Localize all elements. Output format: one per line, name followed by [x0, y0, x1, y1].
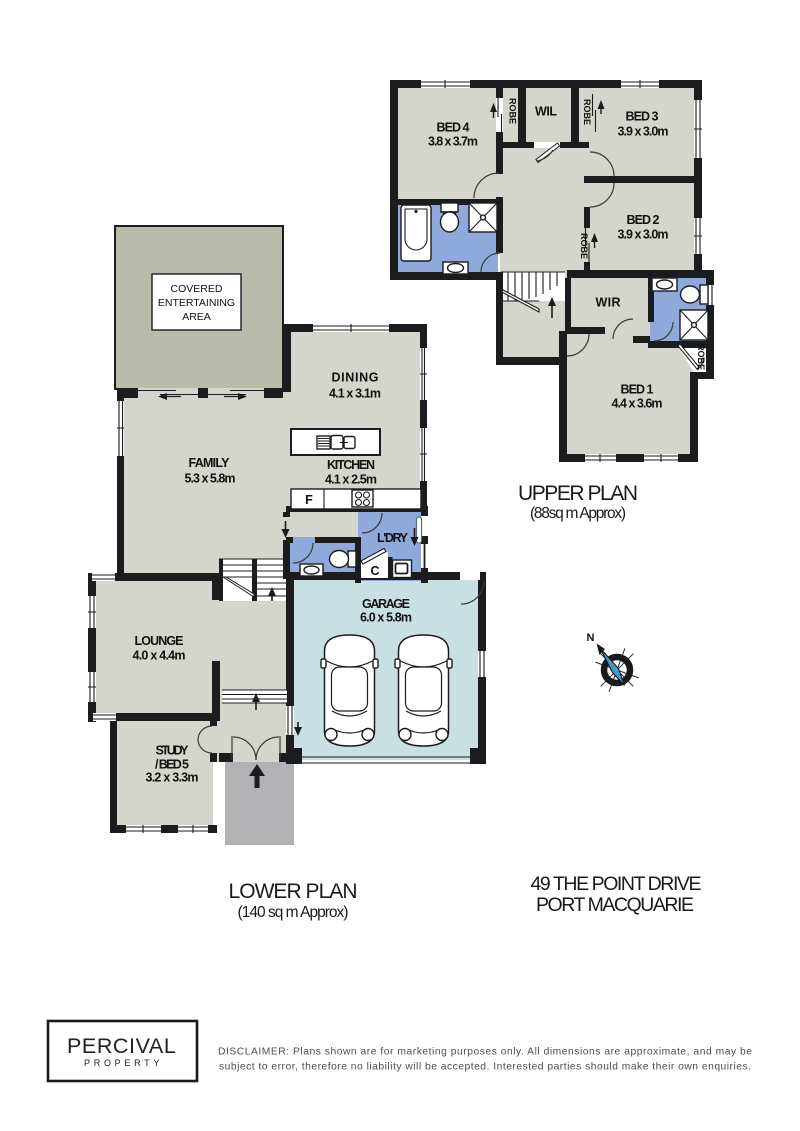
svg-text:3.2 x 3.3m: 3.2 x 3.3m — [146, 771, 199, 785]
svg-text:F: F — [305, 493, 313, 507]
svg-text:3.9 x 3.0m: 3.9 x 3.0m — [618, 125, 669, 139]
svg-text:ENTERTAINING: ENTERTAINING — [158, 297, 235, 309]
svg-text:PROPERTY: PROPERTY — [84, 1058, 164, 1068]
svg-text:COVERED: COVERED — [171, 283, 223, 295]
svg-text:BED 3: BED 3 — [626, 110, 659, 124]
svg-text:AREA: AREA — [182, 311, 211, 323]
svg-text:(88sq m Approx): (88sq m Approx) — [530, 505, 626, 522]
svg-text:/ BED 5: / BED 5 — [155, 758, 189, 772]
svg-text:4.1 x 2.5m: 4.1 x 2.5m — [325, 473, 377, 487]
svg-text:UPPER PLAN: UPPER PLAN — [518, 482, 638, 505]
svg-text:6.0 x 5.8m: 6.0 x 5.8m — [360, 611, 412, 625]
svg-text:ROBE: ROBE — [508, 98, 518, 124]
svg-text:WIR: WIR — [596, 296, 621, 310]
svg-text:BED 1: BED 1 — [621, 383, 654, 397]
svg-text:STUDY: STUDY — [156, 744, 190, 758]
svg-text:LOWER PLAN: LOWER PLAN — [229, 880, 358, 903]
svg-text:PORT MACQUARIE: PORT MACQUARIE — [536, 894, 694, 916]
svg-text:DINING: DINING — [332, 371, 379, 385]
svg-text:4.1 x 3.1m: 4.1 x 3.1m — [329, 387, 381, 401]
svg-text:FAMILY: FAMILY — [189, 456, 231, 470]
svg-text:BED 4: BED 4 — [437, 121, 470, 135]
svg-text:L'DRY: L'DRY — [377, 531, 409, 545]
svg-text:5.3 x 5.8m: 5.3 x 5.8m — [185, 472, 236, 486]
svg-text:4.4 x 3.6m: 4.4 x 3.6m — [612, 397, 663, 411]
svg-text:ROBE: ROBE — [579, 233, 589, 259]
svg-text:subject to error, therefore no: subject to error, therefore no liability… — [219, 1062, 751, 1073]
svg-text:ROBE: ROBE — [696, 344, 706, 370]
svg-text:BED 2: BED 2 — [627, 213, 660, 227]
svg-text:ROBE: ROBE — [582, 99, 592, 125]
svg-text:4.0 x 4.4m: 4.0 x 4.4m — [133, 649, 186, 663]
svg-text:GARAGE: GARAGE — [362, 597, 410, 611]
svg-text:49 THE POINT DRIVE: 49 THE POINT DRIVE — [531, 873, 702, 895]
svg-text:N: N — [587, 632, 595, 644]
svg-text:DISCLAIMER: Plans shown are fo: DISCLAIMER: Plans shown are for marketin… — [218, 1047, 752, 1058]
svg-text:3.9 x 3.0m: 3.9 x 3.0m — [618, 228, 669, 242]
svg-text:LOUNGE: LOUNGE — [135, 634, 184, 648]
svg-text:C: C — [370, 564, 379, 578]
svg-text:(140 sq m Approx): (140 sq m Approx) — [238, 904, 349, 921]
svg-text:WIL: WIL — [535, 105, 557, 119]
svg-text:3.8 x 3.7m: 3.8 x 3.7m — [428, 135, 478, 149]
svg-text:PERCIVAL: PERCIVAL — [67, 1034, 177, 1058]
svg-text:KITCHEN: KITCHEN — [327, 458, 375, 472]
